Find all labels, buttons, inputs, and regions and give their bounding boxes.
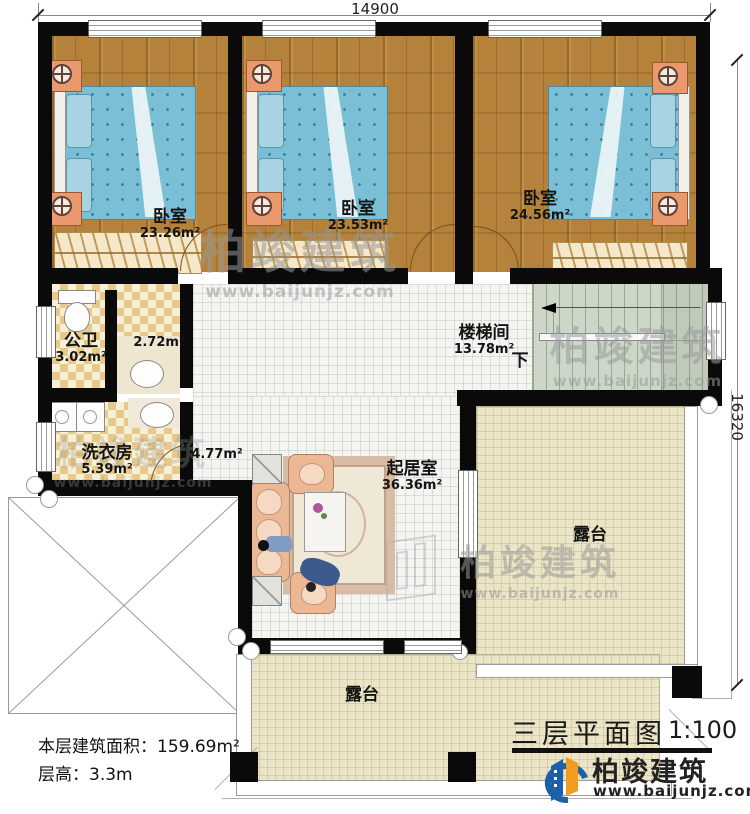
lamp-icon [52,196,72,216]
laundry-window [36,422,56,472]
living-south-window-1 [270,640,384,654]
dim-line-right [737,60,738,686]
laundry-sink-icon [140,402,174,428]
floor-area-value: 159.69m² [157,737,240,757]
lamp-icon [52,64,72,84]
room-area: 36.36m² [370,479,454,493]
hall-label: 4.77m² [186,448,248,462]
wall-right-bedroom3 [696,22,710,268]
lamp-icon [658,66,678,86]
sofa-cushion [256,489,282,515]
floor-height-value: 3.3m [89,765,133,785]
lamp-icon [658,196,678,216]
roof-x-lines [9,498,239,713]
person-sitting [266,536,292,552]
stair-down-label: 下 [506,352,534,371]
column-3 [228,628,246,646]
terrace-corner-post-3 [448,752,476,782]
wall-bedrooms-south-2 [228,268,408,284]
dim-top-value: 14900 [340,0,410,18]
room-area: 5.39m² [62,463,152,477]
floorplan-page: { "plan": { "dim_top": "14900", "dim_rig… [0,0,750,814]
room-name: 公卫 [46,332,116,351]
down-text: 下 [506,352,534,371]
armchair-top [288,454,334,494]
terrace-right-rail-south [476,664,698,678]
coffee-table [304,492,346,552]
person-sitting-head [258,540,269,551]
staircase [532,282,710,396]
stair-arrow-tail [556,307,700,308]
corridor-floor [193,396,252,484]
bedroom1-label: 卧室 23.26m² [118,208,222,241]
wall-bedroom1-2 [228,22,242,284]
floor-area-label: 本层建筑面积： [38,737,157,757]
room-name: 露台 [558,526,622,545]
room-area: 4.77m² [186,448,248,462]
living-terrace-door [458,470,478,558]
bedroom1-window [88,20,202,38]
stair-window [706,302,726,360]
brand-logo-icon [538,750,588,804]
room-name: 起居室 [370,460,454,479]
lamp-icon [252,64,272,84]
bedroom2-pillow-1 [258,94,284,148]
bedroom3-pillow-1 [650,94,676,148]
column-1 [26,476,44,494]
drawing-scale: 1:100 [668,716,737,744]
floor-height-label: 层高： [38,765,89,785]
eave-line-corner [692,698,732,699]
bedroom3-nightstand-1 [652,62,688,94]
room-area: 2.72m² [128,336,190,350]
bedroom3-nightstand-2 [652,192,688,226]
terrace-corner-post-1 [672,666,702,698]
stair-handrail [539,333,665,341]
vanity-label: 2.72m² [128,336,190,350]
end-table-2 [252,576,282,606]
bedroom2-label: 卧室 23.53m² [306,200,410,233]
wall-stair-right-upper [708,268,722,302]
living-south-window-2 [404,640,462,654]
room-name: 卧室 [488,190,592,209]
room-name: 露台 [330,686,394,705]
bedroom2-nightstand-2 [246,192,282,226]
floor-height-note: 层高：3.3m [38,760,133,785]
vanity-sink-icon [130,360,164,388]
armchair-cushion [299,463,325,485]
room-name: 洗衣房 [62,444,152,463]
laundry-label: 洗衣房 5.39m² [62,444,152,477]
wall-bath-south [38,388,117,402]
column-4 [242,642,260,660]
logo-building-orange [566,757,578,796]
wall-bedroom2-3 [455,22,473,284]
drawing-title: 三层平面图 [511,712,666,751]
washer-door-icon [83,410,97,424]
bedroom3-window [488,20,602,38]
washer-door-icon [55,410,69,424]
room-area: 23.53m² [306,219,410,233]
living-label: 起居室 36.36m² [370,460,454,493]
column-5 [700,396,718,414]
bedroom3-label: 卧室 24.56m² [488,190,592,223]
flower-vase-icon [313,503,323,513]
wall-laundry-south [38,480,252,496]
terrace-right-rail-east [684,406,698,674]
wall-stairwell-north [510,268,710,284]
bedroom2-nightstand-1 [246,60,282,92]
column-2 [40,490,58,508]
bedroom1-pillow-1 [66,94,92,148]
wall-bedrooms-south-1 [38,268,178,284]
dim-right-value: 16320 [728,388,746,446]
washer-icon-2 [76,402,105,432]
room-name: 卧室 [118,208,222,227]
sofa-main [250,482,290,582]
room-area: 23.26m² [118,227,222,241]
room-area: 24.56m² [488,209,592,223]
terrace-bottom-label: 露台 [330,686,394,705]
room-area: 3.02m² [46,351,116,365]
wall-stair-south [457,390,722,406]
lamp-icon [252,196,272,216]
terrace-right-label: 露台 [558,526,622,545]
bedroom2-window [262,20,376,38]
brand-url: www.baijunjz.com [593,782,750,800]
wall-living-west [238,480,252,652]
person-lying-head [306,582,316,592]
wall-living-terrace-upper [460,396,476,470]
room-name: 楼梯间 [440,324,528,343]
stair-direction-arrow [541,303,556,313]
sofa-cushion [256,549,282,575]
floor-area-note: 本层建筑面积：159.69m² [38,732,240,757]
roof-skylight [8,497,240,714]
toilet-bowl-icon [64,302,90,332]
room-name: 卧室 [306,200,410,219]
bathroom-label: 公卫 3.02m² [46,332,116,365]
end-table-1 [252,454,282,484]
